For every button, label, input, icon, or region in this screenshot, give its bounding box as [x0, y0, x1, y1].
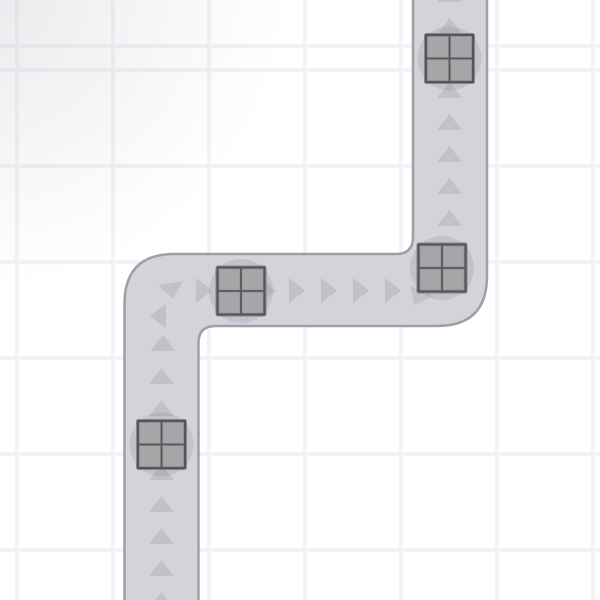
- conveyor-belt-path: [125, 0, 488, 600]
- crate-pane: [420, 246, 441, 267]
- crate-pane: [443, 246, 464, 267]
- crate-pane: [451, 37, 472, 58]
- crate-pane: [219, 269, 240, 290]
- game-board[interactable]: [0, 0, 600, 600]
- crate-pane: [219, 292, 240, 313]
- crate-pane: [443, 269, 464, 290]
- crate-pane: [420, 269, 441, 290]
- crate-pane: [428, 37, 449, 58]
- crate-pane: [428, 60, 449, 81]
- conveyor-layer: [125, 0, 488, 600]
- crate-pane: [163, 423, 184, 444]
- board-canvas: [0, 0, 600, 600]
- crate[interactable]: [425, 34, 475, 84]
- crate-pane: [140, 446, 161, 467]
- crate[interactable]: [137, 420, 187, 470]
- crate-pane: [163, 446, 184, 467]
- direction-arrow-icon: [437, 0, 462, 2]
- crate-pane: [140, 423, 161, 444]
- crate[interactable]: [417, 243, 467, 293]
- crate[interactable]: [216, 266, 266, 316]
- crate-pane: [451, 60, 472, 81]
- crate-pane: [242, 292, 263, 313]
- crate-pane: [242, 269, 263, 290]
